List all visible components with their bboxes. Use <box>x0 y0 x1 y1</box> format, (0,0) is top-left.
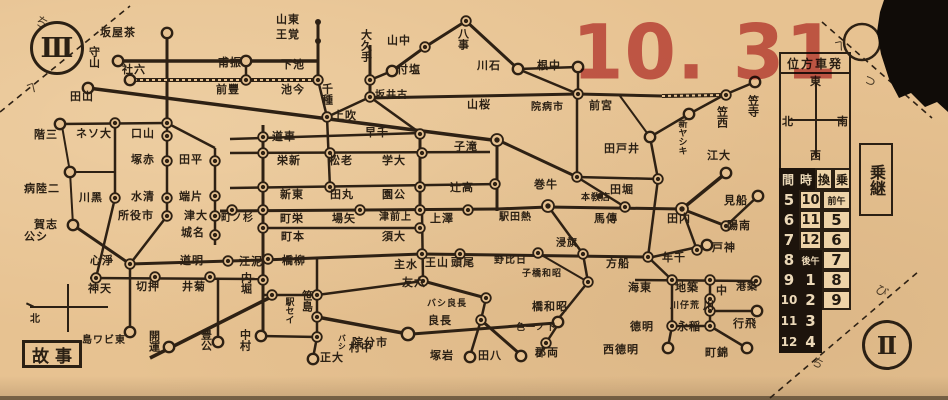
route-line <box>423 281 486 298</box>
table-hour-cell: 8 <box>822 270 851 290</box>
station-label: 田八 <box>478 350 502 362</box>
station-label: 公シ <box>24 231 48 243</box>
station-dot <box>365 75 375 85</box>
route-line <box>230 152 490 153</box>
station-dot <box>162 193 172 203</box>
station-dot <box>312 332 322 342</box>
station-label: 千種 <box>321 83 333 105</box>
table-hour-cell: 11 <box>799 210 822 230</box>
station-dot <box>210 191 220 201</box>
station-label: 前宮 <box>589 100 613 112</box>
station-label: 中村 <box>239 329 251 351</box>
station-label: 本敎店 <box>581 194 611 203</box>
station-label: 友六 <box>402 277 426 289</box>
station-label: 社六 <box>122 64 146 76</box>
station-dot <box>620 202 630 212</box>
table-hour-cell: 5 <box>779 190 799 210</box>
station-label: 豊公 <box>200 329 212 351</box>
station-label: 王覚 <box>276 29 300 41</box>
station-label: 見船 <box>724 195 748 207</box>
station-dot <box>415 205 425 215</box>
station-label: 所役市 <box>118 210 154 222</box>
station-dot <box>365 92 375 102</box>
compass-south: 南 <box>837 113 848 129</box>
station-label: 行飛 <box>733 318 757 330</box>
station-label: 階三 <box>34 129 58 141</box>
table-hour-cell: 12 <box>799 230 822 250</box>
station-dot <box>667 321 677 331</box>
station-dot <box>315 19 321 25</box>
station-label: 新ヤシキ <box>676 119 685 155</box>
station-label: 川黑 <box>79 192 103 204</box>
station-dot <box>417 148 427 158</box>
station-dot <box>162 118 172 128</box>
route-line <box>167 123 215 148</box>
station-dot <box>721 168 731 178</box>
route-line <box>500 141 577 177</box>
station-label: 上澤 <box>430 213 454 225</box>
station-label: 津大 <box>184 210 208 222</box>
station-label: バシ <box>337 334 345 350</box>
station-label: 田丸 <box>330 189 354 201</box>
station-label: 端片 <box>179 191 203 203</box>
station-label: 橋和昭 <box>532 301 568 313</box>
station-label: 色一ノ下 <box>516 324 556 333</box>
station-dot <box>481 293 491 303</box>
station-dot <box>110 193 120 203</box>
station-label: 川 <box>703 300 715 312</box>
station-label: 前豐 <box>216 84 240 96</box>
station-label: 港築 <box>736 283 758 294</box>
station-dot <box>753 191 763 201</box>
station-label: 橋柳 <box>282 255 306 267</box>
date-stamp: 10. 31 <box>572 9 838 97</box>
station-label: 田内 <box>667 213 691 225</box>
station-dot <box>653 174 663 184</box>
station-label: 町栄 <box>280 213 304 225</box>
station-dot <box>223 256 233 266</box>
station-label: 馬傳 <box>594 213 618 225</box>
station-label: 正大 <box>320 352 344 364</box>
station-label: 早千 <box>365 127 389 139</box>
station-label: 根中 <box>537 60 561 72</box>
station-label: 田山 <box>70 91 94 103</box>
station-label: 道明 <box>180 255 204 267</box>
station-label: 笠西 <box>716 106 728 128</box>
table-hour-cell: 12 <box>779 331 799 353</box>
small-compass-north-label: 北 <box>30 310 40 325</box>
station-label: 浸旗 <box>556 239 578 250</box>
station-label: 口山 <box>131 128 155 140</box>
station-label: ネソ大 <box>76 128 112 140</box>
station-label: 駅セイ <box>283 297 292 324</box>
table-header-cell: 時 <box>797 168 815 190</box>
station-dot <box>476 315 486 325</box>
table-hour-cell: 6 <box>822 230 851 250</box>
station-label: 山東 <box>276 14 300 26</box>
station-label: 郡両 <box>535 347 559 359</box>
station-dot <box>241 75 251 85</box>
station-dot <box>125 327 135 337</box>
station-dot <box>68 220 78 230</box>
station-dot <box>213 337 223 347</box>
station-label: 開運 <box>148 330 160 352</box>
station-dot <box>210 230 220 240</box>
table-hour-cell: 6 <box>779 210 799 230</box>
station-dot <box>258 132 268 142</box>
scan-edge <box>0 396 948 400</box>
station-label: 須大 <box>382 231 406 243</box>
route-line <box>130 216 167 264</box>
station-label: 津前上 <box>379 213 412 224</box>
route-line <box>648 179 658 257</box>
zone-mark-bottom-right: Ⅱ <box>862 320 912 370</box>
table-hour-cell: 1 <box>799 270 822 290</box>
station-label: 永稲 <box>677 321 701 333</box>
station-label: 頭尾 <box>451 257 475 269</box>
station-label: 江泥 <box>239 256 263 268</box>
table-hour-cell: 3 <box>799 310 822 331</box>
table-hour-cell: 10 <box>779 290 799 310</box>
station-dot <box>256 331 266 341</box>
station-dot <box>513 64 523 74</box>
station-label: 学大 <box>382 155 406 167</box>
station-label: 川仔荒 <box>670 302 700 311</box>
station-dot <box>65 167 75 177</box>
table-header-cell: 換 <box>815 168 833 190</box>
station-dot <box>491 134 503 146</box>
station-dot <box>258 148 268 158</box>
route-line <box>497 207 548 209</box>
table-hour-cell: 前午 <box>822 190 851 210</box>
station-dot <box>643 252 653 262</box>
station-label: 池今 <box>281 84 305 96</box>
station-label: 町錦 <box>705 347 729 359</box>
station-label: 場矢 <box>332 213 356 225</box>
station-dot <box>162 131 172 141</box>
route-line <box>62 126 70 172</box>
station-label: 町ノ杉 <box>221 214 254 225</box>
station-label: 道車 <box>272 131 296 143</box>
station-dot <box>490 179 500 189</box>
accident-box: 故事 <box>22 340 82 368</box>
station-label: 町本 <box>281 231 305 243</box>
station-dot <box>705 275 715 285</box>
station-label: 切押 <box>136 281 160 293</box>
accident-label: 故事 <box>32 342 78 367</box>
station-label: 田堀 <box>610 184 634 196</box>
station-label: 井菊 <box>182 281 206 293</box>
station-dot <box>583 277 593 287</box>
station-dot <box>415 182 425 192</box>
station-dot <box>241 56 251 66</box>
station-label: 子滝 <box>454 141 478 153</box>
zone-mark-top-left: Ⅲ <box>30 21 84 75</box>
station-label: 新東 <box>280 189 304 201</box>
table-hour-cell: 11 <box>779 310 799 331</box>
station-dot <box>205 272 215 282</box>
table-header-cell: 乗 <box>833 168 851 190</box>
station-label: 神天 <box>88 283 112 295</box>
route-line <box>650 137 658 179</box>
station-label: 山中 <box>387 35 411 47</box>
station-dot <box>312 290 322 300</box>
station-label: 内堀 <box>240 272 252 294</box>
station-dot <box>258 205 268 215</box>
table-hour-cell: 7 <box>779 230 799 250</box>
station-dot <box>533 248 543 258</box>
route-line <box>90 278 263 279</box>
station-dot <box>387 66 397 76</box>
station-label: 水清 <box>131 191 155 203</box>
station-label: 良長 <box>428 315 452 327</box>
station-dot <box>402 328 414 340</box>
station-label: 山桜 <box>467 99 491 111</box>
torn-corner <box>877 0 948 112</box>
station-label: 笹島 <box>301 290 313 312</box>
station-dot <box>162 211 172 221</box>
compass-north: 北 <box>782 113 793 129</box>
station-dot <box>692 245 702 255</box>
station-label: 栄新 <box>277 155 301 167</box>
station-label: 心淨 <box>90 255 114 267</box>
station-dot <box>258 223 268 233</box>
station-dot <box>125 259 135 269</box>
station-label: 田平 <box>179 154 203 166</box>
route-line <box>548 207 682 209</box>
station-label: 川石 <box>477 60 501 72</box>
table-hour-cell: 9 <box>779 270 799 290</box>
transfer-box: 乗継 <box>859 143 893 216</box>
table-hour-cell: 5 <box>822 210 851 230</box>
station-label: 賀志 <box>34 219 58 231</box>
station-label: 主水 <box>394 259 418 271</box>
station-label: 松老 <box>329 155 353 167</box>
station-dot <box>322 112 332 122</box>
station-label: 中 <box>716 285 728 297</box>
station-dot <box>162 28 172 38</box>
station-label: 塚岩 <box>430 350 454 362</box>
compass-west: 西 <box>810 147 821 163</box>
station-label: 城名 <box>181 227 205 239</box>
station-dot <box>516 351 526 361</box>
route-line <box>70 172 73 225</box>
station-label: 方船 <box>606 258 630 270</box>
station-label: 戸神 <box>712 242 736 254</box>
station-dot <box>645 132 655 142</box>
station-label: 巻牛 <box>534 179 558 191</box>
transfer-label: 乗継 <box>864 164 888 196</box>
station-label: 辻高 <box>450 182 474 194</box>
station-label: 上吹 <box>333 110 357 122</box>
station-label: 子橋和昭 <box>522 270 562 279</box>
station-dot <box>258 182 268 192</box>
station-label: 甫振 <box>218 57 242 69</box>
station-dot <box>308 354 318 364</box>
station-label: 笠寺 <box>747 95 759 117</box>
station-dot <box>420 42 430 52</box>
station-dot <box>705 321 715 331</box>
route-line <box>577 177 658 179</box>
table-hour-cell: 8 <box>779 250 799 270</box>
table-hour-cell: 2 <box>799 290 822 310</box>
route-line <box>261 336 317 337</box>
station-dot <box>461 16 471 26</box>
route-line <box>518 69 578 94</box>
station-dot <box>263 254 273 264</box>
zone-symbol-iii: Ⅲ <box>41 33 74 64</box>
table-hour-cell: 後午 <box>799 250 822 270</box>
zone-symbol-ii: Ⅱ <box>877 331 897 360</box>
route-line <box>422 211 423 281</box>
station-dot <box>164 342 174 352</box>
station-dot <box>572 172 582 182</box>
station-label: 王山 <box>425 257 449 269</box>
station-label: 園公 <box>382 189 406 201</box>
station-dot <box>162 156 172 166</box>
station-label: 大久手 <box>360 29 372 62</box>
station-label: 江大 <box>707 150 731 162</box>
station-dot <box>415 223 425 233</box>
station-label: 島ワビ東 <box>82 336 126 347</box>
station-dot <box>258 275 268 285</box>
table-header-cell: 間 <box>779 168 797 190</box>
station-dot <box>210 211 220 221</box>
station-label: 田戸井 <box>604 143 640 155</box>
station-dot <box>663 343 673 353</box>
station-dot <box>415 129 425 139</box>
route-line <box>682 173 726 209</box>
small-compass-h-bar <box>30 306 108 308</box>
station-dot <box>267 290 277 300</box>
station-label: 德明 <box>630 321 654 333</box>
station-label: 八事 <box>457 28 469 50</box>
station-dot <box>210 156 220 166</box>
table-hour-cell: 9 <box>822 290 851 310</box>
station-dot <box>684 109 694 119</box>
station-dot <box>125 75 135 85</box>
station-label: 塚赤 <box>131 154 155 166</box>
station-dot <box>315 38 321 44</box>
small-compass-v-bar <box>67 284 69 332</box>
station-dot <box>542 200 554 212</box>
station-dot <box>312 312 322 322</box>
station-label: 坂屋茶 <box>100 27 136 39</box>
station-label: 地築 <box>675 282 699 294</box>
route-line <box>620 96 650 137</box>
station-label: 駅田熱 <box>499 213 532 224</box>
station-label: 陽南 <box>727 220 751 232</box>
ticket: Ⅲ Ⅱ 10. 31 故事 乗継 位方車発 東 北 南 西 間時換乗510前午6… <box>0 0 948 400</box>
station-label: 下池 <box>281 59 305 71</box>
table-hour-cell: 7 <box>822 250 851 270</box>
station-dot <box>702 240 712 250</box>
route-line <box>317 317 408 334</box>
station-dot <box>742 343 752 353</box>
station-label: 病陸二 <box>24 183 60 195</box>
table-hour-cell: 4 <box>799 331 822 353</box>
station-label: 院分市 <box>352 337 388 349</box>
station-dot <box>463 205 473 215</box>
station-label: 海東 <box>628 282 652 294</box>
station-dot <box>578 249 588 259</box>
station-label: 年千 <box>662 252 686 264</box>
station-dot <box>355 205 365 215</box>
station-dot <box>465 352 475 362</box>
station-label: 坂井古 <box>375 91 408 102</box>
station-label: 付塩 <box>397 64 421 76</box>
station-dot <box>752 306 762 316</box>
table-hour-cell: 10 <box>799 190 822 210</box>
station-label: バシ良長 <box>427 300 467 309</box>
station-label: 西德明 <box>603 344 639 356</box>
station-label: 院病市 <box>531 103 564 114</box>
station-label: 守山 <box>88 46 100 68</box>
compass-horizontal-bar <box>789 119 843 121</box>
station-label: 野比日 <box>494 256 527 267</box>
